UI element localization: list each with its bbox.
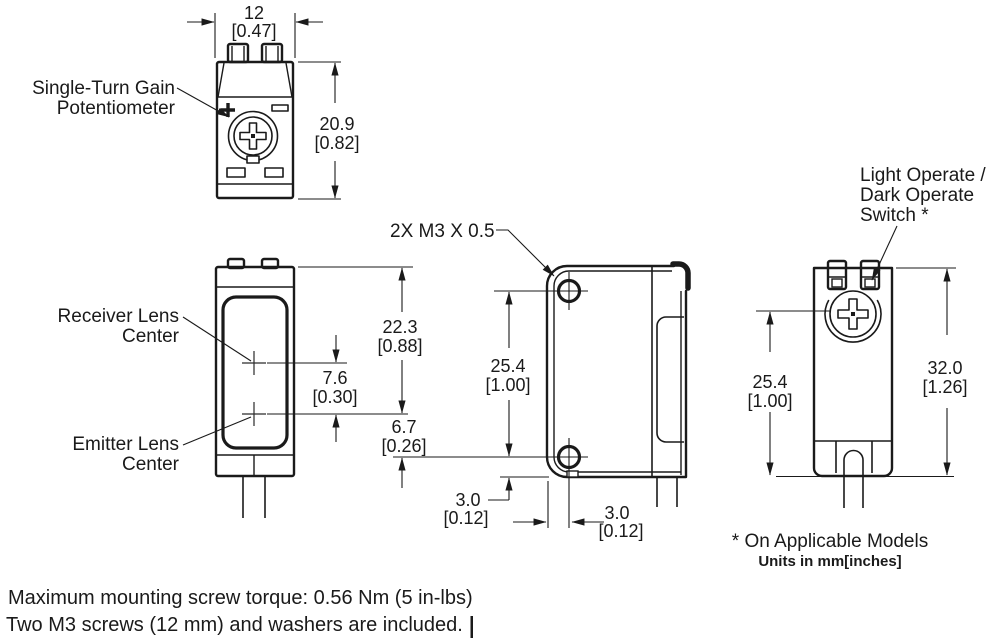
note-torque: Maximum mounting screw torque: 0.56 Nm (…: [8, 587, 473, 609]
emitter-label-line2: Center: [122, 454, 180, 475]
dim-switch-to-bottom-in: [1.00]: [747, 391, 792, 411]
pot-label-line2: Potentiometer: [57, 98, 176, 119]
thread-leader-line: [496, 230, 554, 276]
switch-label-line1: Light Operate /: [860, 165, 986, 186]
pot-center-dot: [251, 134, 255, 138]
pot-bottom-tab: [247, 156, 259, 163]
top-view-chamfer: [217, 63, 293, 97]
lens-window: [223, 297, 287, 448]
receiver-center-cross: [242, 351, 266, 375]
side-cable: [657, 477, 677, 507]
dim-rear-height-mm: 32.0: [927, 358, 962, 378]
dim-top-height-in: [0.82]: [314, 133, 359, 153]
pot-label-line1: Single-Turn Gain: [32, 78, 175, 99]
top-view-tab-right: [262, 44, 282, 62]
dim-lens-gap-in: [0.30]: [312, 387, 357, 407]
switch-leader-line: [872, 226, 897, 280]
emitter-label-line1: Emitter Lens: [72, 434, 179, 455]
dim-emitter-offset-mm: 6.7: [391, 417, 416, 437]
dim-lens-gap-mm: 7.6: [322, 368, 347, 388]
switch-label-line3: Switch *: [860, 205, 929, 226]
receiver-label-line1: Receiver Lens: [58, 306, 179, 327]
front-cable: [243, 476, 265, 518]
dim-top-height-mm: 20.9: [319, 114, 354, 134]
emitter-center-cross: [242, 402, 266, 426]
rear-cable: [844, 451, 863, 508]
notes: Maximum mounting screw torque: 0.56 Nm (…: [6, 587, 473, 638]
led-window-right: [265, 168, 283, 177]
dim-hole-to-bottom-mm: 3.0: [455, 490, 480, 510]
rear-tab-right: [861, 261, 879, 289]
drawing-canvas: 12 [0.47] 20.9 [0.82] Single-Turn Gain P…: [0, 0, 987, 642]
potentiometer-dial: [229, 112, 278, 164]
footnote-applicable-models: * On Applicable Models: [732, 531, 928, 552]
led-window-left: [227, 168, 245, 177]
receiver-label-line2: Center: [122, 326, 180, 347]
dim-switch-to-bottom-mm: 25.4: [752, 372, 787, 392]
dim-top-to-emitter-in: [0.88]: [377, 336, 422, 356]
dim-hole-to-front-mm: 3.0: [604, 503, 629, 523]
switch-cradle-arc: [825, 300, 881, 342]
dim-hole-to-front-in: [0.12]: [598, 521, 643, 541]
dim-hole-spacing-in: [1.00]: [485, 375, 530, 395]
top-view-tab-left: [228, 44, 248, 62]
rear-tab-left: [828, 261, 846, 289]
switch-center-dot: [851, 312, 855, 316]
tab-wall-lines: [232, 46, 278, 61]
switch-label-line2: Dark Operate: [860, 185, 974, 206]
dimension-drawing: 12 [0.47] 20.9 [0.82] Single-Turn Gain P…: [0, 0, 987, 642]
text-cursor: [471, 616, 474, 638]
top-view: 12 [0.47] 20.9 [0.82] Single-Turn Gain P…: [32, 3, 359, 199]
side-view: 2X M3 X 0.5 25.4 [1.00] 3.0 [0.12] 3.0 […: [390, 221, 688, 541]
dim-rear-height-in: [1.26]: [922, 377, 967, 397]
side-top-cap: [673, 264, 688, 288]
rear-view: Light Operate / Dark Operate Switch * 25…: [732, 165, 987, 570]
thread-callout: 2X M3 X 0.5: [390, 221, 495, 242]
gain-minus-icon: [272, 105, 288, 111]
dim-hole-spacing-mm: 25.4: [490, 356, 525, 376]
dim-top-width-in: [0.47]: [231, 21, 276, 41]
dim-top-to-emitter-mm: 22.3: [382, 317, 417, 337]
dim-hole-to-bottom-in: [0.12]: [443, 508, 488, 528]
dim-top-width-mm: 12: [244, 3, 264, 23]
cable-gland: [836, 441, 872, 473]
footnote-units: Units in mm[inches]: [758, 553, 901, 570]
light-dark-operate-switch-dial: [825, 291, 881, 342]
side-slot: [657, 317, 684, 442]
pot-leader-line: [177, 88, 229, 117]
dim-emitter-offset-in: [0.26]: [381, 436, 426, 456]
gain-plus-icon: [221, 103, 235, 117]
note-included: Two M3 screws (12 mm) and washers are in…: [6, 614, 463, 636]
